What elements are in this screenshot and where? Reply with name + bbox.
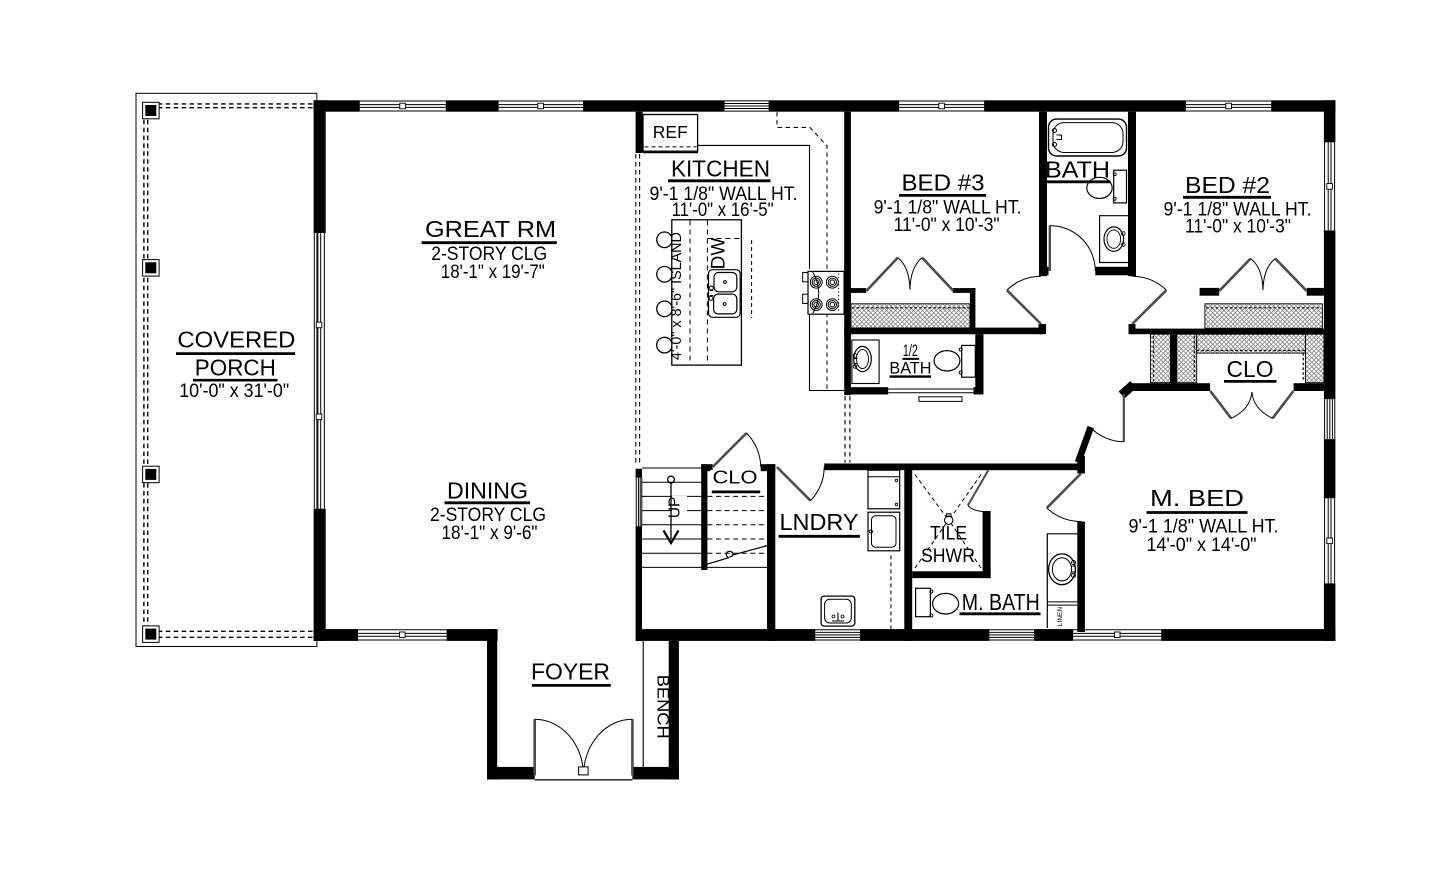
svg-text:4'-0" x 8'-6" ISLAND: 4'-0" x 8'-6" ISLAND: [668, 232, 685, 360]
svg-text:CLO: CLO: [713, 467, 758, 488]
svg-text:1/2: 1/2: [903, 341, 918, 360]
svg-text:11'-0" x 10'-3": 11'-0" x 10'-3": [1185, 216, 1291, 237]
svg-text:M. BATH: M. BATH: [962, 589, 1040, 615]
svg-text:BATH: BATH: [889, 360, 931, 378]
svg-text:SHWR: SHWR: [921, 546, 975, 567]
svg-text:TILE: TILE: [930, 524, 967, 545]
svg-text:COVERED: COVERED: [177, 327, 295, 353]
svg-text:LINEN: LINEN: [1057, 607, 1064, 626]
svg-text:GREAT RM: GREAT RM: [425, 216, 556, 242]
svg-text:BENCH: BENCH: [653, 675, 671, 739]
svg-text:BED #2: BED #2: [1185, 172, 1270, 198]
svg-text:DINING: DINING: [447, 478, 528, 504]
svg-text:BED #3: BED #3: [902, 170, 985, 196]
svg-text:14'-0" x 14'-0": 14'-0" x 14'-0": [1147, 535, 1257, 556]
svg-text:DW: DW: [709, 238, 730, 270]
svg-text:UP: UP: [667, 497, 684, 519]
svg-text:10'-0" x 31'-0": 10'-0" x 31'-0": [179, 381, 289, 402]
svg-text:18'-1" x 9'-6": 18'-1" x 9'-6": [442, 523, 538, 544]
svg-text:BATH: BATH: [1045, 156, 1110, 182]
svg-text:M. BED: M. BED: [1150, 485, 1244, 511]
svg-text:LNDRY: LNDRY: [780, 509, 859, 535]
svg-text:KITCHEN: KITCHEN: [671, 155, 770, 181]
svg-text:11'-0" x 10'-3": 11'-0" x 10'-3": [894, 215, 1000, 236]
svg-text:FOYER: FOYER: [531, 659, 610, 685]
svg-text:CLO: CLO: [1227, 356, 1274, 382]
svg-text:11'-0" x 16'-5": 11'-0" x 16'-5": [672, 200, 774, 221]
svg-text:18'-1" x 19'-7": 18'-1" x 19'-7": [441, 262, 545, 283]
svg-text:PORCH: PORCH: [195, 355, 276, 381]
svg-text:REF: REF: [653, 122, 688, 142]
